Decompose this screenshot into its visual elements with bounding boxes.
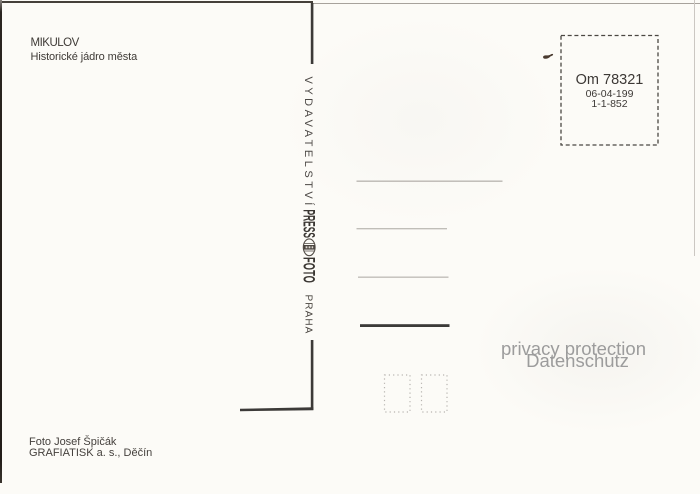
svg-text:PRESS: PRESS [300, 210, 318, 239]
svg-text:VYDAVATELSTVÍ: VYDAVATELSTVÍ [302, 77, 315, 209]
svg-text:PRAHA: PRAHA [303, 295, 314, 335]
svg-text:FOTO: FOTO [300, 257, 318, 283]
